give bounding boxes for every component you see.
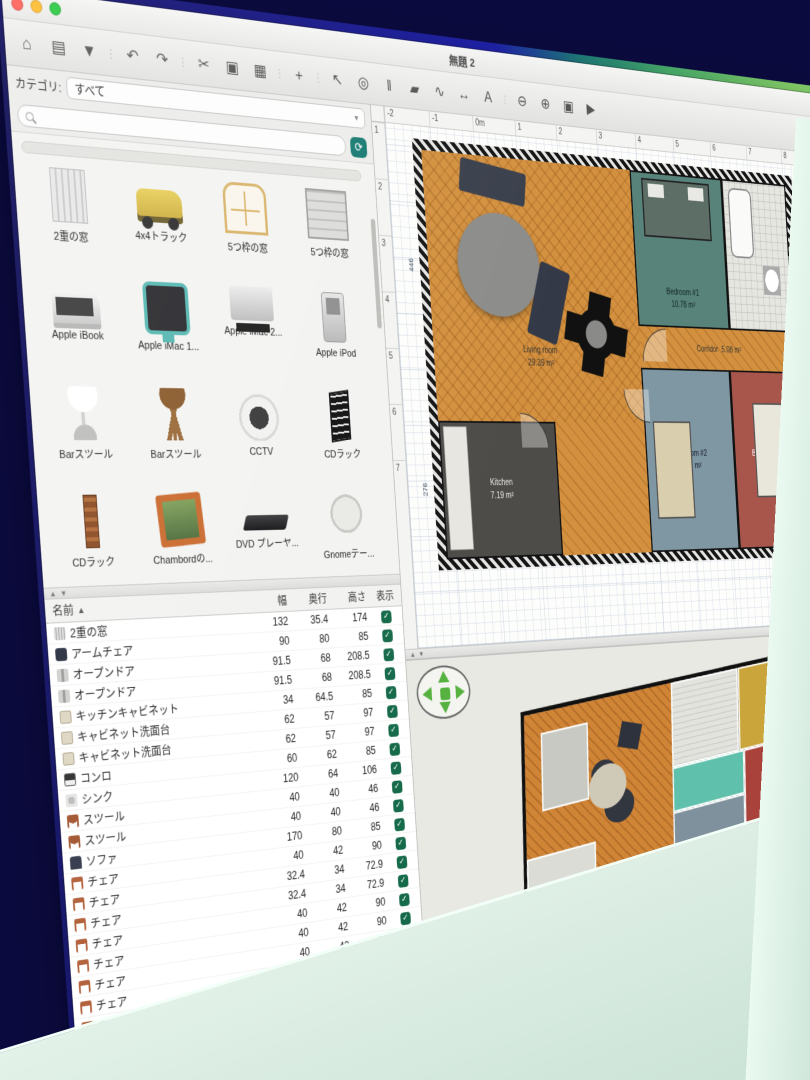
furniture-width: 40 — [263, 809, 304, 827]
furniture-height: 174 — [331, 610, 371, 625]
catalog-item-icon — [321, 292, 347, 343]
visible-checkbox[interactable]: ✓ — [382, 629, 393, 642]
furniture-height: 85 — [345, 819, 384, 836]
furniture-depth: 42 — [311, 919, 351, 938]
catalog-item-icon — [155, 492, 206, 548]
furniture-depth: 68 — [293, 651, 334, 666]
sync-button[interactable]: ⟳ — [350, 137, 368, 159]
cut-button[interactable]: ✂ — [189, 47, 217, 81]
visible-checkbox[interactable]: ✓ — [394, 818, 405, 832]
visible-checkbox[interactable]: ✓ — [400, 911, 411, 925]
furniture-height: 85 — [332, 630, 372, 645]
furniture-depth: 64 — [301, 766, 341, 783]
furniture-height: 208.5 — [335, 668, 375, 683]
furniture-height: 106 — [341, 763, 380, 780]
furniture-width: 60 — [259, 751, 301, 768]
nav-down-icon[interactable] — [439, 701, 451, 713]
furniture-row-icon — [74, 917, 86, 931]
furniture-depth: 34 — [308, 862, 348, 880]
catalog-item[interactable]: 2重の窓 — [19, 159, 119, 269]
furniture-row-icon — [67, 814, 79, 828]
furniture-depth: 40 — [302, 786, 342, 803]
furniture-depth: 40 — [304, 805, 344, 822]
furniture-width: 34 — [255, 693, 297, 709]
visible-checkbox[interactable]: ✓ — [395, 836, 406, 850]
zoom-out-button[interactable]: ⊖ — [510, 86, 533, 116]
furniture-row-icon — [62, 751, 74, 765]
furniture-height: 46 — [343, 800, 382, 817]
catalog-item-label: 2重の窓 — [53, 228, 89, 246]
furniture-row-icon — [61, 731, 73, 745]
toolbar-separator[interactable]: ⋮ — [177, 46, 189, 78]
plan-view[interactable]: -2-10m123456789 1234567 446 276 Living r… — [371, 105, 810, 649]
furniture-depth: 42 — [306, 843, 346, 861]
furniture-height: 97 — [338, 725, 378, 741]
catalog-item-label: Barスツール — [150, 446, 202, 462]
catalog-item[interactable]: Chambordの... — [134, 487, 228, 587]
catalog-item-label: Gnomeテー... — [323, 546, 374, 562]
furniture-panel: カテゴリ: すべて ▾ ⟳ — [7, 65, 435, 1080]
copy-button[interactable]: ▣ — [218, 51, 246, 85]
visible-checkbox[interactable]: ✓ — [386, 686, 397, 699]
furniture-height: 46 — [342, 782, 381, 799]
furniture-width: 40 — [270, 906, 311, 925]
3d-hall — [541, 722, 590, 811]
furniture-width: 32.4 — [268, 887, 309, 906]
search-icon — [25, 111, 34, 121]
catalog-item-icon — [51, 293, 101, 325]
create-photo-button[interactable]: ▣ — [557, 91, 579, 121]
visible-checkbox[interactable]: ✓ — [390, 761, 401, 775]
catalog-item-label: 5つ枠の窓 — [310, 244, 349, 261]
furniture-height: 72.9 — [348, 876, 387, 894]
pan-tool-button[interactable]: ◎ — [351, 67, 377, 99]
room-name: Corridor — [696, 343, 718, 356]
save-button[interactable]: ▼ — [74, 33, 104, 68]
bed[interactable] — [641, 178, 712, 242]
furniture-width: 40 — [271, 925, 312, 944]
ruler-corner — [371, 105, 385, 123]
create-rooms-button[interactable]: ▰ — [402, 73, 427, 105]
dimension-label: 276 — [421, 483, 429, 497]
catalog-item[interactable]: Gnomeテー... — [305, 486, 390, 582]
select-tool-button[interactable]: ↖ — [324, 63, 350, 95]
furniture-width: 32.4 — [267, 867, 308, 885]
furniture-row-icon — [68, 834, 80, 848]
furniture-row-icon — [64, 772, 76, 786]
catalog-item-icon — [329, 390, 352, 443]
nav-center-icon[interactable] — [440, 687, 451, 700]
create-walls-button[interactable]: ‖ — [377, 70, 402, 102]
catalog-item-icon — [236, 389, 282, 440]
nav-right-icon[interactable] — [455, 684, 465, 699]
catalog-item-icon — [305, 188, 349, 241]
furniture-depth: 35.4 — [291, 612, 332, 627]
catalog-item-label: 4x4トラック — [135, 227, 188, 246]
catalog-item-label: CDラック — [324, 446, 362, 461]
furniture-width: 90 — [251, 634, 293, 649]
catalog-item[interactable]: 5つ枠の窓 — [285, 181, 371, 282]
furniture-depth: 34 — [309, 881, 349, 899]
catalog-item-icon — [229, 285, 274, 321]
room-area: 5.08 m² — [721, 344, 741, 357]
photo-of-imac-screen: 無題 2 ⌂▤▼⋮↶↷⋮✂▣▦⋮+⋮↖◎‖▰∿↔A⋮⊖⊕▣▶ カテゴリ: すべて… — [0, 0, 810, 1080]
furniture-height: 90 — [349, 895, 388, 913]
furniture-row-icon — [59, 710, 71, 724]
furniture-depth: 62 — [300, 747, 340, 764]
visible-checkbox[interactable]: ✓ — [381, 610, 392, 623]
furniture-width: 170 — [264, 829, 305, 847]
catalog-item-icon — [325, 491, 369, 541]
chevron-down-icon: ▾ — [354, 113, 358, 124]
catalog-item[interactable]: CDラック — [298, 385, 383, 481]
catalog-item-label: Barスツール — [59, 446, 114, 462]
catalog-item-label: CCTV — [249, 446, 273, 457]
catalog-item[interactable]: DVD プレーヤ... — [222, 486, 311, 585]
furniture-depth: 57 — [297, 709, 338, 725]
sort-ascending-icon[interactable]: ▲ — [77, 604, 86, 614]
room-area: 7.19 m² — [490, 489, 514, 502]
catalog-item[interactable]: CCTV — [215, 383, 305, 481]
furniture-row-icon — [78, 979, 90, 994]
nav-up-icon[interactable] — [437, 670, 449, 682]
furniture-height: 90 — [351, 914, 390, 932]
catalog-item-icon — [82, 495, 100, 549]
furniture-row-icon — [77, 958, 89, 972]
furniture-width: 62 — [258, 731, 300, 748]
furniture-row-icon — [71, 876, 83, 890]
catalog-item-icon — [58, 386, 109, 440]
furniture-width: 40 — [262, 790, 303, 807]
furniture-depth: 57 — [299, 728, 340, 744]
catalog-item-label: Apple iBook — [52, 329, 105, 343]
visible-checkbox[interactable]: ✓ — [388, 723, 399, 736]
visible-checkbox[interactable]: ✓ — [398, 874, 409, 888]
apartment-walls[interactable]: Living room29.39 m²Kitchen7.19 m²Bedroom… — [412, 138, 810, 570]
plan-room[interactable] — [555, 422, 652, 556]
furniture-width: 91.5 — [254, 673, 296, 689]
visible-checkbox[interactable]: ✓ — [384, 667, 395, 680]
furniture-height: 72.9 — [347, 857, 386, 875]
visible-checkbox[interactable]: ✓ — [399, 893, 410, 907]
catalog-item[interactable]: Apple iBook — [26, 269, 126, 375]
furniture-width: 120 — [261, 770, 302, 787]
redo-button[interactable]: ↷ — [148, 42, 177, 76]
furniture-row-icon — [70, 855, 82, 869]
dimension-label: 446 — [407, 258, 415, 272]
catalog-item-icon — [135, 188, 183, 224]
catalog-item[interactable]: CDラック — [42, 488, 141, 587]
catalog-item-icon — [222, 181, 269, 236]
furniture-depth: 80 — [305, 824, 345, 842]
furniture-row-icon — [53, 626, 65, 640]
catalog-item-label: Apple iPod — [316, 347, 357, 359]
catalog-item[interactable]: 5つ枠の窓 — [201, 174, 291, 278]
3d-chair — [617, 721, 642, 750]
bathtub[interactable] — [727, 188, 754, 259]
room-area: 29.39 m² — [528, 357, 555, 371]
furniture-row-icon — [76, 938, 88, 952]
furniture-row-icon — [65, 793, 77, 807]
furniture-width: 62 — [257, 712, 299, 728]
visible-checkbox[interactable]: ✓ — [383, 648, 394, 661]
open-button[interactable]: ▤ — [43, 29, 74, 65]
furniture-row-icon — [80, 1000, 92, 1015]
create-video-button[interactable]: ▶ — [580, 94, 602, 124]
toolbar-separator[interactable]: ⋮ — [500, 85, 510, 114]
furniture-depth: 68 — [295, 670, 336, 686]
visible-checkbox[interactable]: ✓ — [389, 742, 400, 756]
furniture-row-icon — [73, 897, 85, 911]
visible-checkbox[interactable]: ✓ — [387, 705, 398, 718]
new-home-button[interactable]: ⌂ — [11, 26, 42, 62]
catalog-item-icon — [243, 515, 289, 531]
catalog-item[interactable]: Barスツール — [127, 381, 221, 482]
room-area: 10.78 m² — [671, 299, 695, 313]
create-text-button[interactable]: A — [476, 82, 500, 113]
toolbar-separator[interactable]: ⋮ — [274, 57, 285, 88]
category-label: カテゴリ: — [14, 74, 62, 96]
furniture-depth: 80 — [292, 632, 333, 647]
plan-canvas[interactable]: 446 276 Living room29.39 m²Kitchen7.19 m… — [385, 123, 810, 649]
furniture-depth: 64.5 — [296, 690, 337, 706]
room-name: Living room — [523, 344, 558, 358]
catalog-item-icon — [49, 167, 88, 224]
furniture-height: 97 — [337, 706, 377, 722]
catalog-item-icon — [149, 388, 198, 441]
catalog-item-label: CDラック — [72, 553, 116, 570]
furniture-width: 132 — [250, 614, 292, 629]
toolbar-separator[interactable]: ⋮ — [105, 37, 118, 70]
visible-checkbox[interactable]: ✓ — [393, 799, 404, 813]
visible-checkbox[interactable]: ✓ — [396, 855, 407, 869]
toilet[interactable] — [763, 266, 781, 296]
catalog-item-label: DVD プレーヤ... — [235, 535, 299, 552]
catalog-item[interactable]: Apple iMac 2... — [208, 279, 298, 380]
paste-button[interactable]: ▦ — [246, 54, 273, 87]
catalog-item[interactable]: Barスツール — [34, 380, 134, 484]
furniture-depth: 42 — [310, 900, 350, 918]
furniture-row-icon — [56, 668, 68, 682]
create-dimension-button[interactable]: ↔ — [452, 79, 476, 110]
create-polyline-button[interactable]: ∿ — [427, 76, 451, 107]
catalog-item[interactable]: 4x4トラック — [112, 166, 207, 273]
catalog-item-label: 5つ枠の窓 — [227, 239, 268, 257]
furniture-row-icon — [55, 647, 67, 661]
undo-button[interactable]: ↶ — [118, 38, 147, 73]
zoom-in-button[interactable]: ⊕ — [534, 89, 557, 119]
bed[interactable] — [653, 421, 696, 519]
furniture-row-icon — [58, 689, 70, 703]
furniture-height: 85 — [340, 744, 380, 760]
add-furniture-button[interactable]: + — [286, 59, 313, 92]
3d-navigation-pad[interactable] — [415, 664, 472, 721]
catalog-item[interactable]: Apple iMac 1... — [120, 274, 215, 377]
catalog-item-label: Chambordの... — [153, 551, 213, 568]
furniture-width: 91.5 — [253, 654, 295, 670]
furniture-height: 208.5 — [333, 649, 373, 664]
catalog-item-icon — [142, 281, 191, 335]
furniture-height: 85 — [336, 687, 376, 703]
room-name: Kitchen — [490, 476, 513, 489]
furniture-height: 90 — [346, 838, 385, 855]
furniture-width: 40 — [266, 848, 307, 866]
nav-left-icon[interactable] — [422, 687, 432, 702]
toolbar-separator[interactable]: ⋮ — [313, 62, 324, 93]
furniture-catalog: 2重の窓4x4トラック5つ枠の窓5つ枠の窓Apple iBookApple iM… — [11, 131, 399, 588]
visible-checkbox[interactable]: ✓ — [392, 780, 403, 794]
catalog-item[interactable]: Apple iPod — [292, 283, 378, 381]
